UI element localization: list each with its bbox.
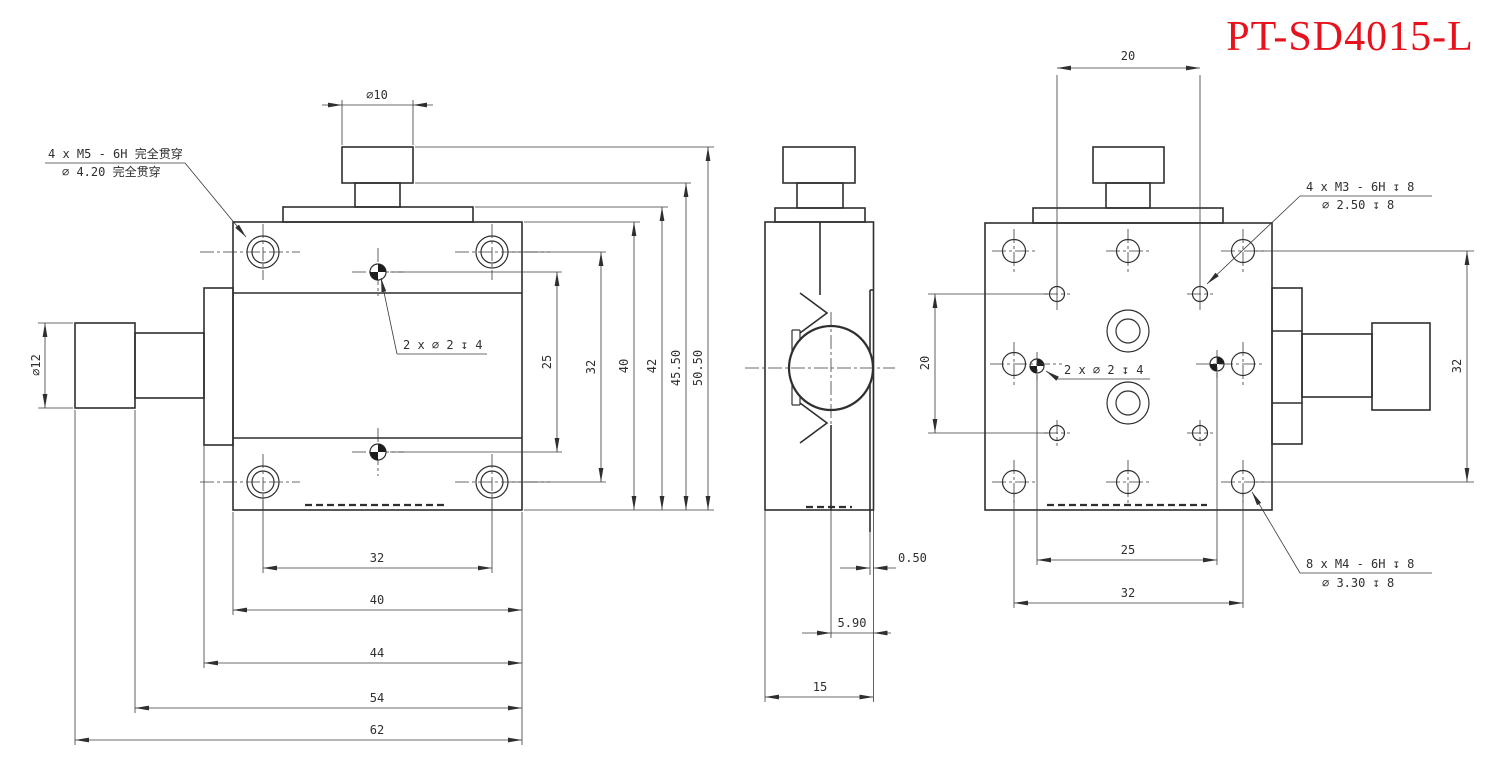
back-view: 20 20 32 25 32 4 x M3 - 6H ↧ 8 ⌀ 2.50 ↧ … (918, 49, 1474, 608)
side-view-outline (765, 147, 874, 532)
front-dim-44h: 44 (370, 646, 384, 660)
m4-callout-line1: 8 x M4 - 6H ↧ 8 (1306, 557, 1414, 571)
m4-leader-line (1252, 492, 1300, 573)
back-dim-32-bottom: 32 (1121, 586, 1135, 600)
front-view-outline (75, 147, 522, 510)
back-dimension-texts: 20 20 32 25 32 (918, 49, 1464, 600)
front-dim-42v: 42 (645, 359, 659, 373)
front-pin-leader-line (381, 278, 397, 354)
m3-callout-line2: ⌀ 2.50 ↧ 8 (1322, 198, 1394, 212)
side-view-dimension-lines (765, 568, 896, 697)
front-pin-callout-text: 2 x ⌀ 2 ↧ 4 (403, 338, 482, 352)
back-dim-25-bottom: 25 (1121, 543, 1135, 557)
m3-callout-line1: 4 x M3 - 6H ↧ 8 (1306, 180, 1414, 194)
side-dim-0-50: 0.50 (898, 551, 927, 565)
front-dim-32v: 32 (584, 360, 598, 374)
drawing-title: PT-SD4015-L (1226, 14, 1473, 60)
engineering-drawing-canvas: ⌀10 ⌀12 25 32 40 42 45.50 50.50 32 40 44… (0, 0, 1500, 775)
m4-callout-line2: ⌀ 3.30 ↧ 8 (1322, 576, 1394, 590)
front-dim-knob-diameter: ⌀10 (366, 88, 388, 102)
m5-callout-line2: ⌀ 4.20 完全贯穿 (62, 164, 161, 179)
back-dimension-lines (935, 68, 1467, 603)
front-dim-50-50: 50.50 (691, 350, 705, 386)
back-pin-callout-text: 2 x ⌀ 2 ↧ 4 (1064, 363, 1143, 377)
back-dim-32-right: 32 (1450, 359, 1464, 373)
side-view: 0.50 5.90 15 (745, 147, 927, 702)
side-dim-15: 15 (813, 680, 827, 694)
back-pin-leader-line (1046, 371, 1058, 379)
front-dim-45-50: 45.50 (669, 350, 683, 386)
m5-thread-callout: 4 x M5 - 6H 完全贯穿 ⌀ 4.20 完全贯穿 (45, 146, 246, 237)
drawing-sheet: ⌀10 ⌀12 25 32 40 42 45.50 50.50 32 40 44… (0, 0, 1500, 775)
front-dim-40h: 40 (370, 593, 384, 607)
m5-leader-line (185, 163, 246, 237)
m4-thread-callout: 8 x M4 - 6H ↧ 8 ⌀ 3.30 ↧ 8 (1252, 492, 1432, 590)
front-view: ⌀10 ⌀12 25 32 40 42 45.50 50.50 32 40 44… (29, 88, 714, 745)
front-dim-25: 25 (540, 355, 554, 369)
m3-thread-callout: 4 x M3 - 6H ↧ 8 ⌀ 2.50 ↧ 8 (1207, 180, 1432, 284)
m5-callout-line1: 4 x M5 - 6H 完全贯穿 (48, 146, 183, 161)
front-dim-40v: 40 (617, 359, 631, 373)
front-dimension-lines (45, 105, 708, 740)
front-dim-62h: 62 (370, 723, 384, 737)
back-pin-callout: 2 x ⌀ 2 ↧ 4 (1046, 363, 1150, 379)
front-dim-54h: 54 (370, 691, 384, 705)
back-dim-20-top: 20 (1121, 49, 1135, 63)
side-dim-5-90: 5.90 (838, 616, 867, 630)
m3-leader-line (1207, 196, 1300, 284)
side-view-extension-lines (765, 510, 874, 702)
back-extension-lines (928, 75, 1474, 608)
back-dim-20-left: 20 (918, 356, 932, 370)
front-pin-callout: 2 x ⌀ 2 ↧ 4 (381, 278, 487, 354)
front-dim-side-knob-diameter: ⌀12 (29, 354, 43, 376)
front-dimension-texts: ⌀10 ⌀12 25 32 40 42 45.50 50.50 32 40 44… (29, 88, 705, 737)
front-dim-32h: 32 (370, 551, 384, 565)
